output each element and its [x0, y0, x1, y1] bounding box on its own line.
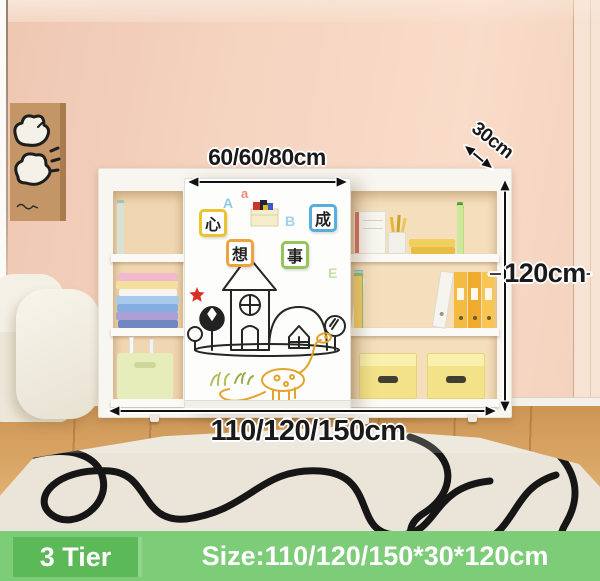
- notebook-stack: [354, 211, 386, 254]
- product-photo-scene: 心 想 事 成 A a B E: [0, 0, 600, 581]
- shelf-foot: [468, 413, 477, 422]
- book-flat: [411, 247, 455, 254]
- sofa-armrest: [16, 289, 100, 419]
- house-doodle: [188, 256, 345, 356]
- binder-yellow: [468, 272, 481, 328]
- ceiling-light: [0, 0, 600, 22]
- letter-magnet-B: B: [285, 213, 295, 229]
- book-flat: [409, 239, 455, 247]
- storage-bin-green: [117, 353, 173, 399]
- shelf-board: [349, 399, 499, 407]
- letter-magnet-a: a: [241, 186, 248, 201]
- tree-foliage: [200, 307, 223, 330]
- books-vertical: [117, 200, 181, 254]
- wall-art-doodle: [10, 103, 66, 221]
- door-width-dimension-label: 60/60/80cm: [167, 144, 367, 171]
- left-door-frame-edge: [6, 0, 8, 300]
- size-label: Size:110/120/150*30*120cm: [150, 531, 600, 581]
- dinosaur-doodle: [220, 332, 332, 402]
- letter-magnet-E: E: [328, 265, 337, 281]
- binder-yellow: [454, 272, 467, 328]
- binder-white: [432, 270, 455, 328]
- wall-seam: [590, 0, 591, 412]
- storage-box-yellow: [427, 353, 485, 399]
- shelf-board: [111, 328, 185, 336]
- magnet-xin: 心: [199, 209, 227, 237]
- tier-badge: 3 Tier: [13, 537, 142, 577]
- shelf-board: [111, 399, 185, 407]
- magnet-xiang: 想: [226, 239, 254, 267]
- shelf-board: [349, 254, 499, 262]
- size-banner: 3 Tier Size:110/120/150*30*120cm: [0, 531, 600, 581]
- magnet-shi: 事: [281, 241, 309, 269]
- blocks-magnet: [251, 200, 278, 226]
- pencil-cup: [388, 232, 406, 254]
- wall-right-panel: [573, 0, 600, 412]
- storage-box-yellow: [359, 353, 417, 399]
- shelf-board: [111, 254, 185, 262]
- books-vertical: [354, 268, 434, 328]
- width-dimension-label: 110/120/150cm: [158, 415, 458, 448]
- bookshelf-unit: 心 想 事 成 A a B E: [98, 168, 512, 418]
- star-magnet: [189, 287, 204, 302]
- magnet-cheng: 成: [309, 204, 337, 232]
- right-shelf-compartment: [351, 191, 497, 407]
- grass-doodle: [211, 373, 253, 385]
- books-green: [457, 202, 495, 254]
- left-shelf-compartment: [113, 191, 183, 407]
- letter-magnet-A: A: [223, 195, 233, 211]
- whiteboard-sliding-door: 心 想 事 成 A a B E: [184, 178, 351, 410]
- door-bottom-rail: [185, 400, 350, 409]
- shelf-board: [349, 328, 499, 336]
- height-dimension-label: 120cm: [504, 258, 586, 289]
- binder-yellow: [482, 272, 495, 328]
